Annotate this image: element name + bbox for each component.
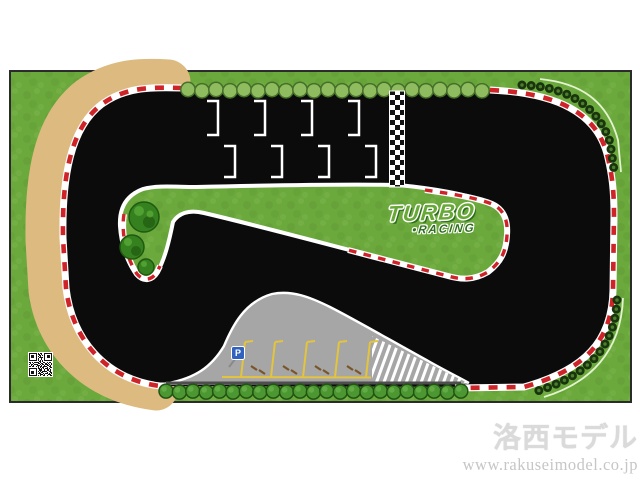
hedge-bush: [251, 84, 265, 98]
hedge-bush: [320, 384, 334, 398]
hedge-bush-highlight: [282, 387, 288, 393]
hedge-bush: [373, 384, 387, 398]
hedge-bush: [266, 384, 280, 398]
hedge-bush: [195, 84, 209, 98]
product-photo: TURBO •RACING P 洛西モデル www.rakuseimodel.c…: [0, 0, 640, 480]
parking-slot-tick: [245, 341, 253, 342]
hedge-bush: [360, 385, 374, 399]
hedge-bush: [159, 384, 173, 398]
hedge-bush: [280, 385, 294, 399]
hedge-bush: [239, 384, 253, 398]
hedge-bush: [293, 384, 307, 398]
hedge-bush: [454, 384, 468, 398]
hedge-bush: [433, 82, 447, 96]
parking-sign: P: [231, 346, 245, 360]
hedge-bush-highlight: [175, 387, 181, 393]
hedge-bush: [321, 82, 335, 96]
hedge-bush-highlight: [228, 387, 234, 393]
hedge-bush-highlight: [215, 386, 221, 392]
hedge-bush: [333, 385, 347, 399]
hedge-bush-highlight: [255, 387, 261, 393]
hedge-bush: [172, 385, 186, 399]
qr-module: [51, 375, 52, 376]
hedge-bush-highlight: [161, 386, 167, 392]
hedge-bush: [440, 385, 454, 399]
hedge-bush-highlight: [456, 386, 462, 392]
watermark-title: 洛西モデル: [440, 423, 638, 454]
parking-baseline: [166, 382, 461, 385]
hedge-bush: [347, 384, 361, 398]
track-mat-graphic: [0, 0, 640, 480]
hedge-bush: [414, 385, 428, 399]
watermark: 洛西モデル www.rakuseimodel.co.jp: [440, 423, 638, 475]
hedge-bush-highlight: [429, 386, 435, 392]
hedge-bush: [253, 385, 267, 399]
hedge-bush: [349, 82, 363, 96]
hedge-bush-highlight: [295, 386, 301, 392]
hedge-bush: [213, 384, 227, 398]
hedge-bush-highlight: [242, 386, 248, 392]
hedge-bush: [307, 84, 321, 98]
hedge-bush: [306, 385, 320, 399]
hedge-bush: [293, 82, 307, 96]
hedge-bush: [237, 82, 251, 96]
hedge-bush-highlight: [188, 386, 194, 392]
hedge-bush-highlight: [335, 387, 341, 393]
hedge-bush-highlight: [389, 387, 395, 393]
hedge-bush: [363, 84, 377, 98]
hedge-bush-highlight: [349, 386, 355, 392]
hedge-bush-highlight: [362, 387, 368, 393]
hedge-bush: [279, 84, 293, 98]
hedge-bush: [186, 384, 200, 398]
hedge-bush: [226, 385, 240, 399]
checkered-finish-line: [390, 91, 405, 187]
parking-base-yellow-line: [222, 377, 371, 378]
hedge-bush: [223, 84, 237, 98]
parking-slot-tick: [370, 341, 378, 342]
hedge-bush-highlight: [416, 387, 422, 393]
hedge-bush: [335, 84, 349, 98]
hedge-bush-highlight: [443, 387, 449, 393]
hedge-bush: [181, 82, 195, 96]
hedge-bush: [419, 84, 433, 98]
hedge-bush-highlight: [201, 387, 207, 393]
hedge-bush: [427, 384, 441, 398]
hedge-bush: [400, 384, 414, 398]
hedge-bush: [447, 84, 461, 98]
hedge-bush: [405, 82, 419, 96]
hedge-bush-highlight: [268, 386, 274, 392]
hedge-bush-highlight: [322, 386, 328, 392]
qr-code: [28, 352, 53, 377]
hedge-bush: [265, 82, 279, 96]
hedge-bush: [199, 385, 213, 399]
hedge-bush: [461, 82, 475, 96]
parking-slot-tick: [275, 341, 283, 342]
hedge-row-bottom: [159, 384, 468, 399]
parking-slot-tick: [307, 341, 315, 342]
hedge-bush: [209, 82, 223, 96]
hedge-bush: [475, 84, 489, 98]
hedge-bush-highlight: [309, 387, 315, 393]
hedge-bush-highlight: [402, 386, 408, 392]
parking-slot-tick: [339, 341, 347, 342]
hedge-bush: [387, 385, 401, 399]
watermark-url: www.rakuseimodel.co.jp: [440, 455, 638, 475]
hedge-bush-highlight: [376, 386, 382, 392]
